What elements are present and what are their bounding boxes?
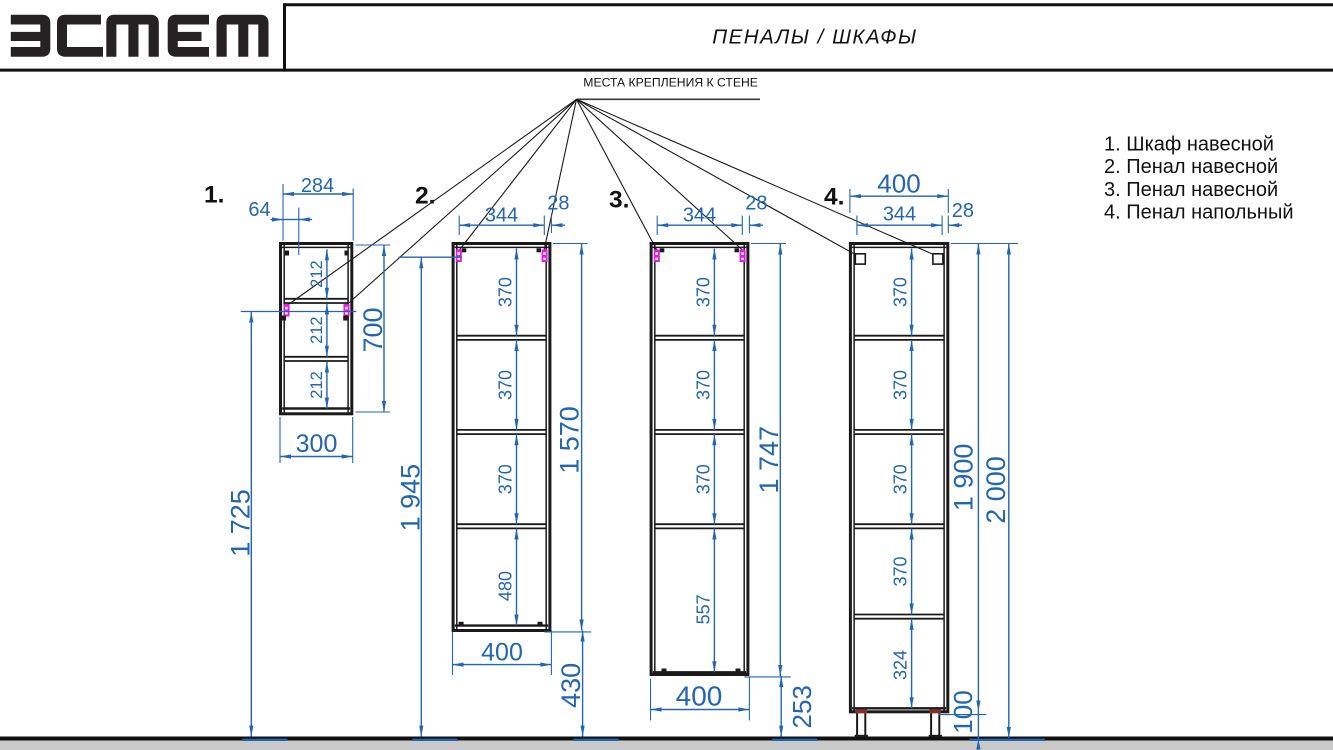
svg-text:212: 212 xyxy=(308,316,326,344)
svg-text:28: 28 xyxy=(952,200,974,222)
svg-text:344: 344 xyxy=(485,204,518,226)
svg-text:1 570: 1 570 xyxy=(555,406,585,474)
svg-text:2.: 2. xyxy=(415,183,435,210)
svg-text:370: 370 xyxy=(694,464,714,494)
svg-text:4. Пенал напольный: 4. Пенал напольный xyxy=(1104,202,1294,224)
svg-text:3. Пенал навесной: 3. Пенал навесной xyxy=(1104,179,1278,201)
svg-text:2 000: 2 000 xyxy=(981,456,1011,524)
svg-text:370: 370 xyxy=(496,464,516,494)
svg-text:700: 700 xyxy=(358,307,388,352)
svg-text:1 945: 1 945 xyxy=(396,464,426,532)
svg-text:324: 324 xyxy=(891,650,911,680)
svg-text:МЕСТА КРЕПЛЕНИЯ К СТЕНЕ: МЕСТА КРЕПЛЕНИЯ К СТЕНЕ xyxy=(583,76,758,90)
svg-text:370: 370 xyxy=(694,277,714,307)
svg-text:212: 212 xyxy=(308,260,326,288)
svg-text:64: 64 xyxy=(248,199,270,221)
svg-text:370: 370 xyxy=(891,370,911,400)
svg-text:ПЕНАЛЫ / ШКАФЫ: ПЕНАЛЫ / ШКАФЫ xyxy=(712,26,917,49)
svg-text:28: 28 xyxy=(745,193,767,215)
svg-text:2. Пенал навесной: 2. Пенал навесной xyxy=(1104,156,1278,178)
svg-text:370: 370 xyxy=(496,370,516,400)
svg-text:370: 370 xyxy=(496,277,516,307)
svg-text:370: 370 xyxy=(694,370,714,400)
svg-text:212: 212 xyxy=(308,371,326,399)
svg-text:344: 344 xyxy=(683,204,716,226)
svg-text:370: 370 xyxy=(891,556,911,586)
svg-text:3.: 3. xyxy=(609,187,629,214)
svg-text:344: 344 xyxy=(883,204,916,226)
svg-text:400: 400 xyxy=(877,168,920,198)
svg-text:1.: 1. xyxy=(204,182,224,209)
svg-text:1 747: 1 747 xyxy=(754,426,784,494)
svg-text:300: 300 xyxy=(296,430,338,458)
svg-text:28: 28 xyxy=(547,193,569,215)
svg-text:4.: 4. xyxy=(824,184,844,211)
svg-text:370: 370 xyxy=(891,464,911,494)
svg-text:253: 253 xyxy=(787,685,817,728)
svg-text:480: 480 xyxy=(496,571,516,601)
svg-text:400: 400 xyxy=(481,639,523,667)
svg-text:100: 100 xyxy=(948,690,978,733)
svg-text:1 725: 1 725 xyxy=(226,489,256,557)
svg-text:1. Шкаф навесной: 1. Шкаф навесной xyxy=(1104,134,1274,156)
svg-text:430: 430 xyxy=(556,663,586,708)
svg-text:1 900: 1 900 xyxy=(949,444,979,512)
svg-text:400: 400 xyxy=(676,681,723,712)
svg-text:557: 557 xyxy=(694,594,714,624)
svg-text:284: 284 xyxy=(301,175,334,197)
svg-text:370: 370 xyxy=(891,277,911,307)
